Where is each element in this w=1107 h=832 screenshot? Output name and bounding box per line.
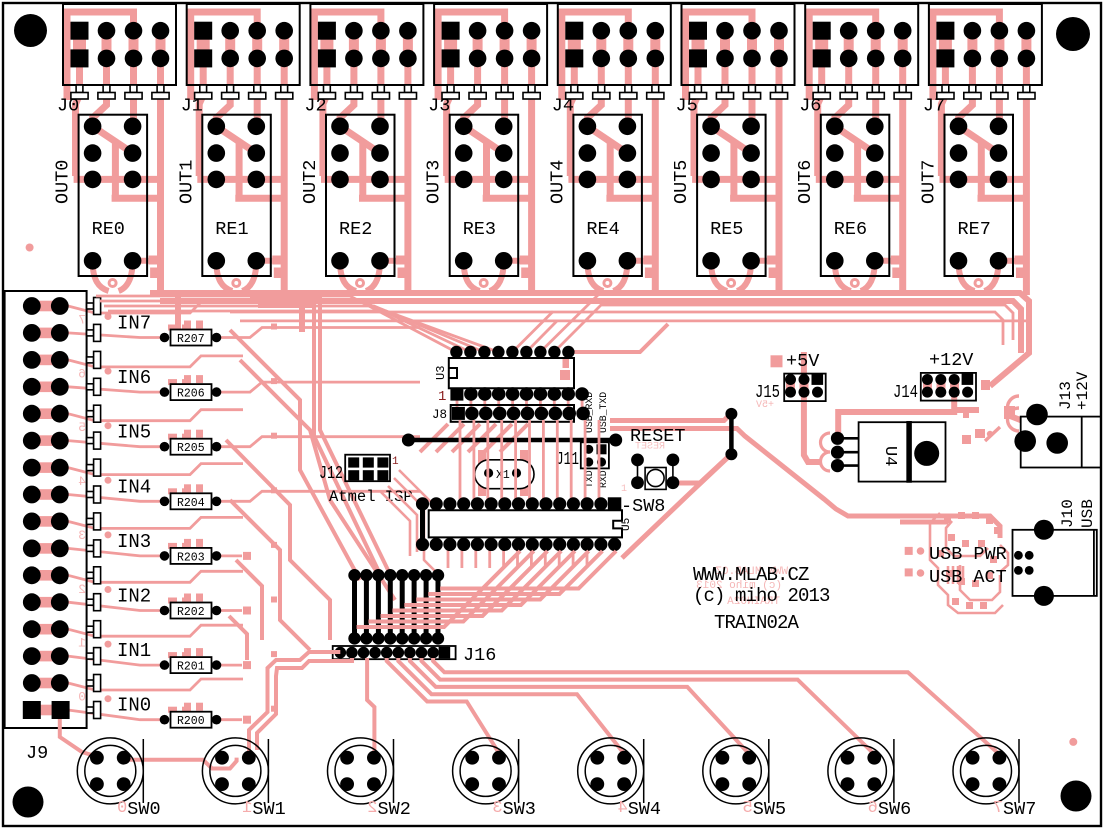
svg-text:R205: R205 bbox=[177, 442, 205, 455]
svg-text:J16: J16 bbox=[463, 645, 496, 666]
svg-text:6: 6 bbox=[868, 799, 878, 818]
svg-text:OUT0: OUT0 bbox=[53, 160, 74, 204]
svg-text:J11: J11 bbox=[556, 449, 579, 470]
svg-text:IN3: IN3 bbox=[117, 531, 151, 553]
svg-text:J0: J0 bbox=[57, 96, 79, 117]
svg-text:3: 3 bbox=[78, 528, 86, 543]
svg-text:WWW.MLAB.CZ: WWW.MLAB.CZ bbox=[693, 564, 809, 586]
svg-text:RE1: RE1 bbox=[215, 219, 248, 240]
svg-text:RE6: RE6 bbox=[834, 219, 867, 240]
svg-text:0: 0 bbox=[117, 799, 127, 818]
svg-text:RE5: RE5 bbox=[710, 219, 743, 240]
svg-text:IN2: IN2 bbox=[117, 586, 151, 608]
svg-text:IN0: IN0 bbox=[117, 695, 151, 717]
svg-text:J4: J4 bbox=[552, 96, 574, 117]
svg-text:SW7: SW7 bbox=[1003, 799, 1036, 820]
svg-text:OUT6: OUT6 bbox=[795, 160, 816, 204]
svg-text:SW0: SW0 bbox=[127, 799, 160, 820]
svg-text:R202: R202 bbox=[177, 606, 205, 619]
svg-text:5: 5 bbox=[78, 420, 86, 435]
svg-text:J1: J1 bbox=[181, 96, 203, 117]
svg-text:RE2: RE2 bbox=[339, 219, 372, 240]
svg-text:J14: J14 bbox=[893, 382, 918, 403]
svg-text:4: 4 bbox=[78, 474, 86, 489]
svg-text:4: 4 bbox=[617, 799, 627, 818]
svg-text:OUT3: OUT3 bbox=[424, 160, 445, 204]
svg-text:U4: U4 bbox=[880, 446, 899, 466]
svg-text:USB: USB bbox=[1079, 499, 1097, 528]
svg-text:IN5: IN5 bbox=[117, 422, 151, 444]
svg-text:-SW8: -SW8 bbox=[621, 496, 665, 517]
svg-text:6: 6 bbox=[78, 366, 86, 381]
svg-text:2: 2 bbox=[367, 799, 377, 818]
svg-text:7: 7 bbox=[78, 313, 86, 328]
svg-text:J12: J12 bbox=[319, 463, 343, 484]
svg-text:J7: J7 bbox=[923, 96, 945, 117]
svg-text:J3: J3 bbox=[428, 96, 450, 117]
svg-text:RE0: RE0 bbox=[92, 219, 125, 240]
svg-text:R201: R201 bbox=[177, 661, 205, 674]
svg-text:J8: J8 bbox=[432, 408, 447, 422]
svg-text:0: 0 bbox=[78, 690, 86, 705]
svg-text:R204: R204 bbox=[177, 497, 205, 510]
svg-text:TRAIN02A: TRAIN02A bbox=[714, 612, 800, 634]
svg-text:5: 5 bbox=[743, 799, 753, 818]
svg-text:IN4: IN4 bbox=[117, 476, 151, 498]
svg-text:R206: R206 bbox=[177, 388, 205, 401]
svg-text:SW1: SW1 bbox=[252, 799, 285, 820]
svg-text:SW2: SW2 bbox=[378, 799, 411, 820]
svg-text:OUT4: OUT4 bbox=[547, 160, 568, 204]
svg-text:J5: J5 bbox=[676, 96, 698, 117]
svg-text:IN7: IN7 bbox=[117, 313, 151, 335]
svg-text:J2: J2 bbox=[304, 96, 326, 117]
svg-text:RE4: RE4 bbox=[586, 219, 619, 240]
svg-text:J13: J13 bbox=[1057, 381, 1075, 410]
svg-text:IN6: IN6 bbox=[117, 367, 151, 389]
svg-text:RESET: RESET bbox=[635, 442, 665, 453]
svg-text:J10: J10 bbox=[1059, 499, 1077, 528]
svg-text:J9: J9 bbox=[26, 743, 48, 764]
svg-text:RE7: RE7 bbox=[958, 219, 991, 240]
svg-text:OUT5: OUT5 bbox=[671, 160, 692, 204]
svg-text:OUT1: OUT1 bbox=[176, 160, 197, 204]
svg-text:USB PWR: USB PWR bbox=[929, 544, 1007, 565]
svg-text:7: 7 bbox=[993, 799, 1003, 818]
svg-text:R200: R200 bbox=[177, 715, 205, 728]
svg-text:1: 1 bbox=[242, 799, 252, 818]
svg-text:IN1: IN1 bbox=[117, 640, 151, 662]
svg-text:SW5: SW5 bbox=[753, 799, 786, 820]
svg-text:SW4: SW4 bbox=[628, 799, 661, 820]
svg-text:SW3: SW3 bbox=[503, 799, 536, 820]
svg-text:+5V: +5V bbox=[786, 351, 819, 372]
svg-text:J6: J6 bbox=[799, 96, 821, 117]
svg-text:OUT7: OUT7 bbox=[919, 160, 940, 204]
svg-text:SW6: SW6 bbox=[878, 799, 911, 820]
svg-text:1: 1 bbox=[621, 484, 627, 495]
svg-text:+12V: +12V bbox=[1074, 371, 1092, 410]
svg-text:(c) miho 2013: (c) miho 2013 bbox=[693, 585, 830, 607]
svg-text:RE3: RE3 bbox=[463, 219, 496, 240]
svg-text:+5V: +5V bbox=[756, 400, 774, 411]
svg-text:USB ACT: USB ACT bbox=[929, 567, 1007, 588]
svg-text:1: 1 bbox=[392, 456, 399, 468]
svg-text:1: 1 bbox=[438, 389, 446, 405]
svg-text:+12V: +12V bbox=[929, 350, 973, 371]
svg-text:U5: U5 bbox=[621, 518, 633, 531]
svg-text:R203: R203 bbox=[177, 551, 205, 564]
svg-text:1: 1 bbox=[78, 636, 86, 651]
svg-text:R207: R207 bbox=[177, 333, 205, 346]
svg-text:U3: U3 bbox=[434, 366, 448, 380]
svg-text:OUT2: OUT2 bbox=[300, 160, 321, 204]
svg-text:2: 2 bbox=[78, 582, 86, 597]
svg-text:3: 3 bbox=[492, 799, 502, 818]
